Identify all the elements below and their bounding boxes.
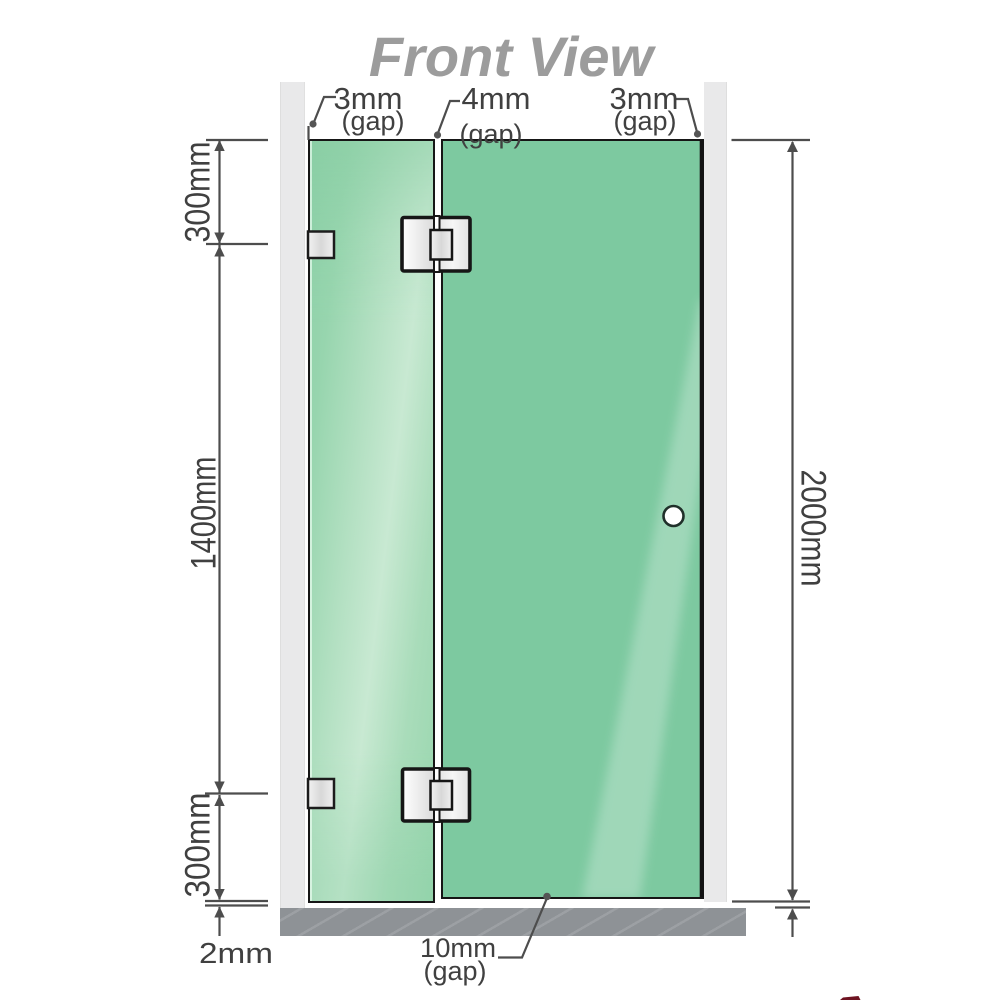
svg-text:2mm: 2mm: [199, 938, 273, 970]
svg-text:(gap): (gap): [423, 956, 486, 986]
svg-text:4mm: 4mm: [462, 81, 531, 116]
svg-text:300mm: 300mm: [179, 142, 218, 243]
svg-text:2000mm: 2000mm: [794, 470, 833, 587]
svg-text:1400mm: 1400mm: [185, 457, 224, 570]
svg-text:(gap): (gap): [613, 106, 676, 136]
svg-text:(gap): (gap): [341, 106, 404, 136]
svg-text:300mm: 300mm: [179, 793, 218, 898]
svg-text:(gap): (gap): [459, 119, 522, 149]
